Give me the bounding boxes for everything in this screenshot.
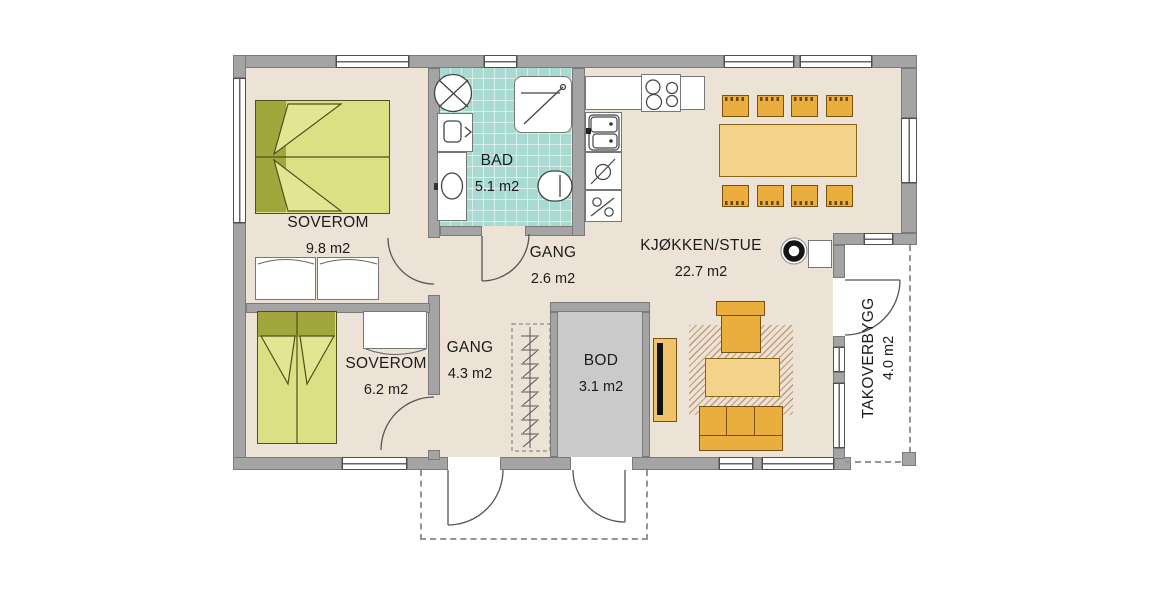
wall-segment: [901, 183, 917, 233]
dresser: [317, 257, 379, 300]
wall-segment-bod: [642, 312, 650, 457]
toilet: [437, 113, 473, 152]
dining-chair: [722, 95, 749, 117]
room-name: SOVEROM: [287, 210, 368, 236]
wall-segment-bod: [550, 302, 650, 312]
dining-chair: [791, 95, 818, 117]
dining-chair: [757, 95, 784, 117]
sofa-cushion: [726, 406, 755, 436]
window: [864, 233, 893, 245]
window: [342, 457, 407, 470]
room-area: 3.1 m2: [579, 374, 623, 400]
dining-chair: [791, 185, 818, 207]
wall-segment: [632, 457, 719, 470]
window: [762, 457, 834, 470]
dining-table: [719, 124, 857, 177]
cooktop: [641, 74, 681, 112]
room-area: 4.3 m2: [447, 361, 494, 387]
tv-icon: [657, 343, 663, 415]
window: [724, 55, 794, 68]
room-name: BOD: [579, 348, 623, 374]
window: [719, 457, 753, 470]
tv-bench: [653, 338, 677, 422]
window: [233, 78, 246, 223]
window: [901, 118, 917, 183]
entrance-porch-outline: [420, 470, 648, 540]
dishwasher-cabinet: [585, 152, 622, 190]
porch-post: [902, 452, 916, 466]
armchair-back: [716, 301, 765, 316]
wall-segment: [893, 233, 917, 245]
room-name: SOVEROM: [345, 351, 426, 377]
room-area: 6.2 m2: [345, 377, 426, 403]
window: [336, 55, 409, 68]
window: [800, 55, 872, 68]
wall-segment: [833, 448, 845, 459]
room-area: 4.0 m2: [879, 297, 900, 418]
room-label-bod: BOD 3.1 m2: [579, 348, 623, 400]
dresser: [255, 257, 316, 300]
room-name: KJØKKEN/STUE: [640, 233, 762, 259]
dining-chair: [826, 185, 853, 207]
window: [484, 55, 517, 68]
window: [833, 383, 845, 448]
bed-headboard: [256, 101, 286, 212]
dining-chair: [757, 185, 784, 207]
sofa-cushion: [754, 406, 783, 436]
dining-chair: [826, 95, 853, 117]
wall-segment: [753, 457, 762, 470]
wall-segment: [833, 372, 845, 383]
room-label-gang-1: GANG 2.6 m2: [530, 240, 577, 292]
room-name: GANG: [447, 335, 494, 361]
kitchen-sink-cabinet: [585, 112, 622, 152]
sofa-backrest: [699, 435, 783, 451]
wall-segment: [409, 55, 484, 68]
door-opening: [448, 457, 500, 470]
room-label-kjokken-stue: KJØKKEN/STUE 22.7 m2: [640, 233, 762, 285]
window: [833, 347, 845, 372]
room-label-takoverbygg: TAKOVERBYGG 4.0 m2: [858, 297, 900, 418]
wall-segment: [233, 223, 246, 470]
double-bed: [257, 311, 337, 444]
double-bed: [255, 100, 390, 214]
shower: [514, 76, 572, 133]
room-area: 9.8 m2: [287, 236, 368, 262]
wall-segment: [440, 226, 482, 236]
room-label-soverom-1: SOVEROM 9.8 m2: [287, 210, 368, 262]
floor-plan-canvas: SOVEROM 9.8 m2 BAD 5.1 m2 GANG 2.6 m2 KJ…: [0, 0, 1150, 600]
wall-segment: [233, 55, 336, 68]
wall-segment: [517, 55, 724, 68]
wall-segment: [500, 457, 571, 470]
room-area: 2.6 m2: [530, 266, 577, 292]
sofa-cushion: [699, 406, 727, 436]
chimney-box: [808, 240, 832, 268]
dining-chair: [722, 185, 749, 207]
wall-segment-bod: [550, 312, 558, 457]
bed-headboard: [258, 312, 335, 337]
wall-segment: [833, 245, 845, 278]
wall-segment: [901, 68, 917, 118]
room-area: 22.7 m2: [640, 259, 762, 285]
wall-segment: [872, 55, 917, 68]
sofa: [699, 406, 783, 451]
vanity-sink: [437, 152, 467, 221]
room-label-bad: BAD 5.1 m2: [475, 148, 519, 200]
room-name: TAKOVERBYGG: [858, 297, 879, 418]
wall-segment: [233, 55, 246, 78]
wall-segment: [233, 457, 342, 470]
coffee-table: [705, 358, 780, 397]
wall-segment: [428, 450, 440, 460]
room-name: GANG: [530, 240, 577, 266]
appliance-cabinet: [585, 190, 622, 222]
door-opening: [571, 457, 632, 470]
room-label-soverom-2: SOVEROM 6.2 m2: [345, 351, 426, 403]
room-name: BAD: [475, 148, 519, 174]
wardrobe: [363, 311, 427, 349]
wall-segment: [572, 68, 585, 236]
armchair-seat: [721, 315, 761, 353]
wall-segment: [833, 336, 845, 347]
wall-segment: [833, 233, 864, 245]
room-area: 5.1 m2: [475, 174, 519, 200]
door-opening: [833, 278, 845, 336]
room-label-gang-2: GANG 4.3 m2: [447, 335, 494, 387]
